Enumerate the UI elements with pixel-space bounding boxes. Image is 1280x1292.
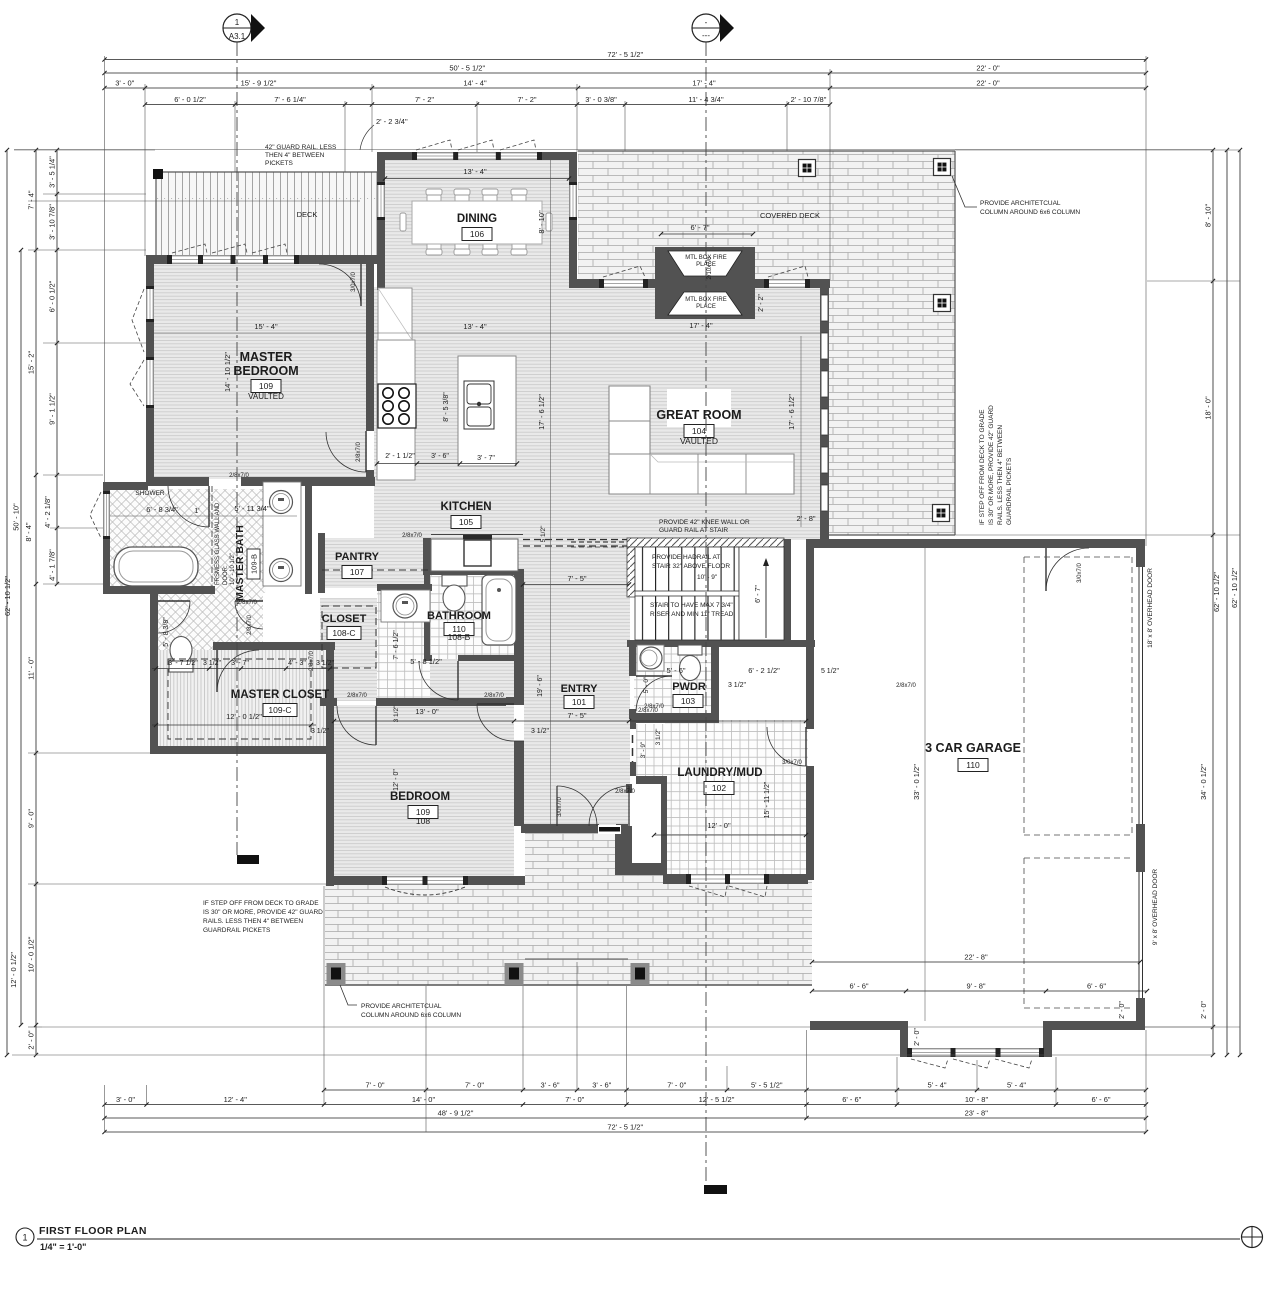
- svg-text:2' - 2 3/4": 2' - 2 3/4": [376, 117, 408, 126]
- svg-text:IF STEP OFF FROM DECK TO GRADE: IF STEP OFF FROM DECK TO GRADE: [979, 409, 986, 525]
- svg-text:6' - 8 3/4": 6' - 8 3/4": [146, 505, 178, 514]
- svg-text:13' - 4": 13' - 4": [463, 167, 487, 176]
- svg-text:3' - 10 7/8": 3' - 10 7/8": [48, 204, 57, 240]
- svg-text:103: 103: [681, 696, 695, 706]
- svg-text:2/8x7/0: 2/8x7/0: [309, 650, 315, 670]
- svg-text:3 1/2": 3 1/2": [531, 728, 550, 735]
- svg-text:109-B: 109-B: [250, 554, 259, 574]
- svg-text:3' - 0": 3' - 0": [116, 1095, 135, 1104]
- svg-text:8' - 4": 8' - 4": [24, 522, 33, 541]
- svg-text:7' - 0": 7' - 0": [565, 1095, 584, 1104]
- svg-text:DECK: DECK: [297, 210, 318, 219]
- svg-text:9' - 1 1/2": 9' - 1 1/2": [48, 393, 57, 425]
- svg-text:18' - 0": 18' - 0": [1204, 396, 1213, 420]
- svg-text:2' - 0": 2' - 0": [1119, 1001, 1126, 1019]
- svg-text:8' - 10": 8' - 10": [1204, 204, 1213, 228]
- svg-text:108-C: 108-C: [332, 628, 355, 638]
- svg-text:13' - 4": 13' - 4": [463, 322, 487, 331]
- svg-text:7' - 2": 7' - 2": [517, 95, 536, 104]
- svg-text:12' - 0 1/2": 12' - 0 1/2": [226, 712, 262, 721]
- svg-text:3' - 9": 3' - 9": [640, 741, 647, 758]
- svg-text:15' - 11 1/2": 15' - 11 1/2": [764, 781, 771, 818]
- svg-text:101: 101: [572, 697, 586, 707]
- svg-text:PROVIDE HADRAIL AT: PROVIDE HADRAIL AT: [652, 554, 720, 561]
- svg-text:19' - 6": 19' - 6": [537, 675, 544, 697]
- svg-text:PANTRY: PANTRY: [335, 551, 380, 563]
- svg-text:3/0x7/0: 3/0x7/0: [1077, 562, 1083, 582]
- svg-text:3/0x7/0: 3/0x7/0: [557, 796, 563, 816]
- svg-text:106: 106: [470, 229, 484, 239]
- svg-text:12' - 4": 12' - 4": [224, 1095, 248, 1104]
- svg-text:7' - 0": 7' - 0": [365, 1081, 384, 1090]
- svg-text:7' - 4": 7' - 4": [27, 190, 36, 209]
- svg-text:6' - 7": 6' - 7": [755, 585, 762, 603]
- svg-text:3' - 6": 3' - 6": [592, 1081, 611, 1090]
- svg-text:6' - 6": 6' - 6": [1087, 982, 1106, 991]
- svg-text:33' - 0 1/2": 33' - 0 1/2": [912, 764, 921, 800]
- svg-text:2/8x7/0: 2/8x7/0: [638, 708, 658, 714]
- svg-text:THEN 4" BETWEEN: THEN 4" BETWEEN: [265, 152, 325, 159]
- svg-text:17' - 6 1/2": 17' - 6 1/2": [787, 394, 796, 430]
- svg-text:62' - 10 1/2": 62' - 10 1/2": [3, 576, 12, 616]
- svg-text:62' - 10 1/2": 62' - 10 1/2": [1212, 572, 1221, 612]
- svg-text:48' - 9 1/2": 48' - 9 1/2": [438, 1109, 474, 1118]
- svg-text:2/8x7/0: 2/8x7/0: [484, 693, 504, 699]
- svg-text:15' - 9 1/2": 15' - 9 1/2": [241, 79, 277, 88]
- svg-text:2/8x7/0: 2/8x7/0: [402, 533, 422, 539]
- svg-text:12' - 0": 12' - 0": [707, 821, 731, 830]
- svg-text:50' - 10": 50' - 10": [12, 503, 21, 531]
- svg-text:109: 109: [259, 381, 273, 391]
- svg-text:3' - 6": 3' - 6": [431, 453, 449, 460]
- svg-text:15' - 4": 15' - 4": [254, 322, 278, 331]
- svg-text:2' - 1 1/2": 2' - 1 1/2": [385, 453, 415, 460]
- svg-text:COVERED DECK: COVERED DECK: [760, 211, 820, 220]
- svg-text:107: 107: [350, 567, 364, 577]
- svg-text:3 1/2": 3 1/2": [655, 728, 662, 745]
- svg-text:108: 108: [416, 816, 430, 826]
- svg-text:MASTER: MASTER: [240, 350, 293, 364]
- svg-text:62' - 10 1/2": 62' - 10 1/2": [1230, 568, 1239, 608]
- svg-text:PROVIDE 42" KNEE WALL OR: PROVIDE 42" KNEE WALL OR: [659, 519, 750, 526]
- svg-text:10' - 10 1/2": 10' - 10 1/2": [230, 553, 236, 585]
- svg-text:5' - 8 1/2": 5' - 8 1/2": [410, 657, 442, 666]
- svg-text:22' - 0": 22' - 0": [976, 64, 1000, 73]
- svg-text:9' - 8": 9' - 8": [966, 982, 985, 991]
- svg-text:VAULTED: VAULTED: [248, 392, 284, 401]
- svg-text:2/8x7/0: 2/8x7/0: [347, 693, 367, 699]
- svg-text:2' - 2": 2' - 2": [758, 294, 765, 312]
- svg-text:18' x 8' OVERHEAD DOOR: 18' x 8' OVERHEAD DOOR: [1147, 568, 1154, 648]
- svg-text:11' - 0": 11' - 0": [27, 657, 36, 680]
- svg-text:6' - 0 1/2": 6' - 0 1/2": [174, 95, 206, 104]
- svg-text:3' - 6": 3' - 6": [540, 1081, 559, 1090]
- svg-text:13' - 0": 13' - 0": [415, 707, 439, 716]
- svg-text:4' - 1 7/8": 4' - 1 7/8": [48, 549, 57, 581]
- svg-text:4' - 3": 4' - 3": [288, 660, 306, 667]
- svg-text:IF STEP OFF FROM DECK TO GRADE: IF STEP OFF FROM DECK TO GRADE: [203, 900, 319, 907]
- svg-text:1/4" = 1'-0": 1/4" = 1'-0": [40, 1242, 86, 1252]
- svg-text:FIRST FLOOR PLAN: FIRST FLOOR PLAN: [39, 1225, 147, 1237]
- svg-text:11' - 4 3/4": 11' - 4 3/4": [688, 95, 724, 104]
- svg-text:34' - 0 1/2": 34' - 0 1/2": [1199, 764, 1208, 800]
- svg-text:10' - 9": 10' - 9": [697, 574, 718, 581]
- svg-text:3 1/2": 3 1/2": [316, 660, 335, 667]
- svg-text:CLOSET: CLOSET: [322, 613, 367, 625]
- svg-text:14' - 4": 14' - 4": [463, 79, 487, 88]
- svg-text:2/8x7/0: 2/8x7/0: [896, 683, 916, 689]
- svg-text:2' - 10 7/8": 2' - 10 7/8": [791, 95, 827, 104]
- svg-text:COLUMN AROUND 6x6 COLUMN: COLUMN AROUND 6x6 COLUMN: [361, 1012, 461, 1019]
- svg-text:STAIR TO HAVE MAX 7 3/4": STAIR TO HAVE MAX 7 3/4": [650, 602, 733, 609]
- svg-text:17' - 4": 17' - 4": [692, 79, 716, 88]
- svg-text:IS 30" OR MORE, PROVIDE 42" GU: IS 30" OR MORE, PROVIDE 42" GUARD: [203, 909, 323, 916]
- svg-text:7' - 6 1/4": 7' - 6 1/4": [274, 95, 306, 104]
- svg-text:22' - 8": 22' - 8": [964, 953, 988, 962]
- svg-text:BEDROOM: BEDROOM: [390, 791, 450, 803]
- svg-text:PWDR: PWDR: [672, 681, 706, 693]
- svg-text:KITCHEN: KITCHEN: [440, 501, 491, 513]
- svg-text:GREAT ROOM: GREAT ROOM: [656, 408, 741, 422]
- svg-text:110: 110: [966, 760, 980, 770]
- svg-text:3 1/2": 3 1/2": [393, 705, 400, 722]
- svg-text:5' - 6": 5' - 6": [666, 666, 685, 675]
- svg-text:3/0x7/0: 3/0x7/0: [782, 760, 802, 766]
- svg-text:10' - 0 1/2": 10' - 0 1/2": [27, 936, 36, 972]
- svg-text:4' - 2 1/8": 4' - 2 1/8": [43, 496, 52, 528]
- svg-text:50' - 5 1/2": 50' - 5 1/2": [449, 64, 485, 73]
- svg-text:-: -: [705, 18, 708, 27]
- svg-text:2/8x7/0: 2/8x7/0: [237, 600, 257, 606]
- svg-text:5' - 4": 5' - 4": [1007, 1081, 1026, 1090]
- svg-text:RISER AND MIN 11" TREAD: RISER AND MIN 11" TREAD: [650, 611, 734, 618]
- svg-text:2/8x7/0: 2/8x7/0: [229, 473, 249, 479]
- svg-text:3 1/2": 3 1/2": [728, 682, 747, 689]
- svg-text:3 CAR GARAGE: 3 CAR GARAGE: [925, 741, 1021, 755]
- svg-text:2' - 8": 2' - 8": [796, 514, 815, 523]
- svg-text:5 1/2": 5 1/2": [540, 525, 547, 542]
- svg-text:COLUMN AROUND 6x6 COLUMN: COLUMN AROUND 6x6 COLUMN: [980, 209, 1080, 216]
- svg-text:109-C: 109-C: [268, 705, 291, 715]
- svg-text:12' - 5 1/2": 12' - 5 1/2": [699, 1095, 735, 1104]
- svg-text:72' - 5 1/2": 72' - 5 1/2": [607, 1123, 643, 1132]
- svg-text:IS 30" OR MORE, PROVIDE 42" GU: IS 30" OR MORE, PROVIDE 42" GUARD: [988, 405, 995, 525]
- svg-text:23' - 8": 23' - 8": [965, 1109, 989, 1118]
- svg-text:1: 1: [22, 1233, 27, 1243]
- svg-text:VAULTED: VAULTED: [680, 436, 718, 446]
- svg-text:---: ---: [702, 31, 710, 40]
- svg-text:9' x 8' OVERHEAD DOOR: 9' x 8' OVERHEAD DOOR: [1152, 869, 1159, 945]
- svg-text:7' - 5": 7' - 5": [567, 574, 586, 583]
- svg-text:DOOR:: DOOR:: [223, 565, 229, 585]
- svg-text:3/0x7/0: 3/0x7/0: [351, 271, 357, 291]
- svg-text:2/8x7/0: 2/8x7/0: [615, 789, 635, 795]
- svg-text:105: 105: [459, 517, 473, 527]
- svg-text:3' - 7": 3' - 7": [231, 660, 249, 667]
- svg-text:5' - 8 3/8": 5' - 8 3/8": [163, 617, 170, 647]
- svg-text:17' - 6 1/2": 17' - 6 1/2": [537, 394, 546, 430]
- svg-text:5' - 0": 5' - 0": [643, 676, 650, 693]
- svg-text:8' - 5 3/8": 8' - 5 3/8": [443, 392, 450, 422]
- svg-text:2' - 0": 2' - 0": [1201, 1001, 1208, 1019]
- svg-text:7' - 0": 7' - 0": [465, 1081, 484, 1090]
- svg-text:GUARDRAIL PICKETS: GUARDRAIL PICKETS: [1006, 457, 1013, 525]
- svg-text:STAIR 32" ABOVE FLOOR: STAIR 32" ABOVE FLOOR: [652, 563, 730, 570]
- svg-text:3' - 7": 3' - 7": [477, 455, 495, 462]
- svg-text:6' - 6": 6' - 6": [842, 1095, 861, 1104]
- svg-text:12' - 0": 12' - 0": [393, 769, 400, 791]
- svg-text:5 1/2": 5 1/2": [821, 668, 840, 675]
- svg-text:PROVIDE ARCHITETCUAL: PROVIDE ARCHITETCUAL: [980, 200, 1061, 207]
- svg-text:GUARD RAIL AT STAIR: GUARD RAIL AT STAIR: [659, 527, 728, 534]
- svg-text:FRSMESS GLASS WALL AND: FRSMESS GLASS WALL AND: [215, 502, 221, 585]
- svg-text:MASTER CLOSET: MASTER CLOSET: [231, 689, 329, 701]
- svg-text:9' - 0": 9' - 0": [27, 809, 36, 828]
- svg-text:3' - 0 3/8": 3' - 0 3/8": [585, 95, 617, 104]
- svg-text:6' - 6": 6' - 6": [849, 982, 868, 991]
- svg-text:5' - 5 1/2": 5' - 5 1/2": [751, 1081, 783, 1090]
- svg-text:A3.1: A3.1: [229, 32, 246, 41]
- svg-text:14' - 10 1/2": 14' - 10 1/2": [223, 352, 232, 392]
- svg-text:7' - 0": 7' - 0": [667, 1081, 686, 1090]
- svg-text:7' - 2": 7' - 2": [415, 95, 434, 104]
- svg-text:2/10x7/0: 2/10x7/0: [707, 256, 713, 280]
- svg-text:2' - 0": 2' - 0": [27, 1030, 36, 1049]
- svg-text:RAILS. LESS THEN 4" BETWEEN: RAILS. LESS THEN 4" BETWEEN: [203, 918, 303, 925]
- svg-text:6' - 6": 6' - 6": [1091, 1095, 1110, 1104]
- svg-text:GUARDRAIL PICKETS: GUARDRAIL PICKETS: [203, 927, 271, 934]
- svg-text:10' - 8": 10' - 8": [965, 1095, 989, 1104]
- svg-text:104: 104: [692, 426, 706, 436]
- svg-text:PROVIDE ARCHITETCUAL: PROVIDE ARCHITETCUAL: [361, 1003, 442, 1010]
- svg-text:7' - 5": 7' - 5": [567, 711, 586, 720]
- svg-text:17' - 4": 17' - 4": [689, 321, 713, 330]
- svg-text:3' - 0": 3' - 0": [115, 79, 134, 88]
- svg-text:6' - 7": 6' - 7": [690, 223, 709, 232]
- svg-text:2/8x7/0: 2/8x7/0: [356, 441, 362, 461]
- svg-text:42" GUARD RAIL. LESS: 42" GUARD RAIL. LESS: [265, 144, 337, 151]
- svg-text:7' - 6 1/2": 7' - 6 1/2": [393, 630, 400, 660]
- svg-text:6' - 2 1/2": 6' - 2 1/2": [748, 666, 780, 675]
- svg-text:108-B: 108-B: [448, 632, 471, 642]
- svg-text:ENTRY: ENTRY: [561, 683, 599, 695]
- svg-text:1: 1: [235, 18, 240, 27]
- svg-text:DINING: DINING: [457, 213, 497, 225]
- svg-text:2/8x7/0: 2/8x7/0: [247, 614, 253, 634]
- svg-text:2' - 0": 2' - 0": [914, 1028, 921, 1046]
- svg-text:15' - 2": 15' - 2": [27, 351, 36, 375]
- svg-text:3' - 5 1/4": 3' - 5 1/4": [48, 156, 57, 188]
- svg-text:3 1/2": 3 1/2": [203, 660, 222, 667]
- svg-text:12' - 0 1/2": 12' - 0 1/2": [9, 952, 18, 988]
- svg-text:102: 102: [712, 783, 726, 793]
- svg-text:1': 1': [194, 508, 199, 515]
- svg-text:PICKETS: PICKETS: [265, 160, 293, 167]
- svg-text:14' - 0": 14' - 0": [412, 1095, 436, 1104]
- svg-text:LAUNDRY/MUD: LAUNDRY/MUD: [677, 767, 762, 779]
- svg-text:3 1/2": 3 1/2": [311, 728, 330, 735]
- svg-text:SHOWER: SHOWER: [135, 490, 165, 497]
- svg-text:8' - 10": 8' - 10": [537, 210, 546, 234]
- svg-text:6' - 0 1/2": 6' - 0 1/2": [48, 280, 57, 312]
- svg-text:72' - 5 1/2": 72' - 5 1/2": [607, 50, 643, 59]
- svg-text:5' - 4": 5' - 4": [927, 1081, 946, 1090]
- svg-text:5' - 11 3/4": 5' - 11 3/4": [234, 504, 270, 513]
- svg-text:BEDROOM: BEDROOM: [233, 364, 298, 378]
- svg-text:RAILS. LESS THEN 4" BETWEEN: RAILS. LESS THEN 4" BETWEEN: [997, 425, 1004, 525]
- svg-text:BATHROOM: BATHROOM: [427, 610, 491, 622]
- svg-text:3' - 7 1/2": 3' - 7 1/2": [168, 660, 198, 667]
- svg-text:22' - 0": 22' - 0": [976, 79, 1000, 88]
